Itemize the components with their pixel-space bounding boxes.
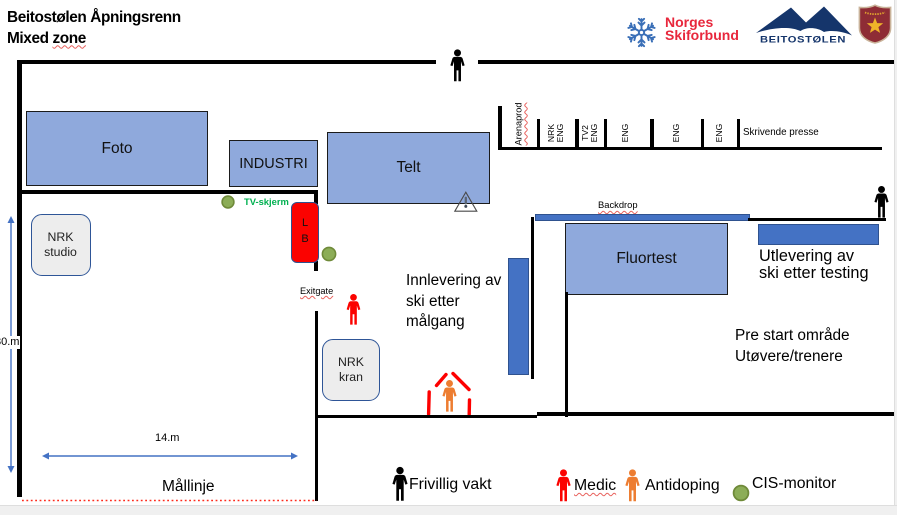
svg-text:BEITOSTØLEN: BEITOSTØLEN: [760, 35, 846, 45]
